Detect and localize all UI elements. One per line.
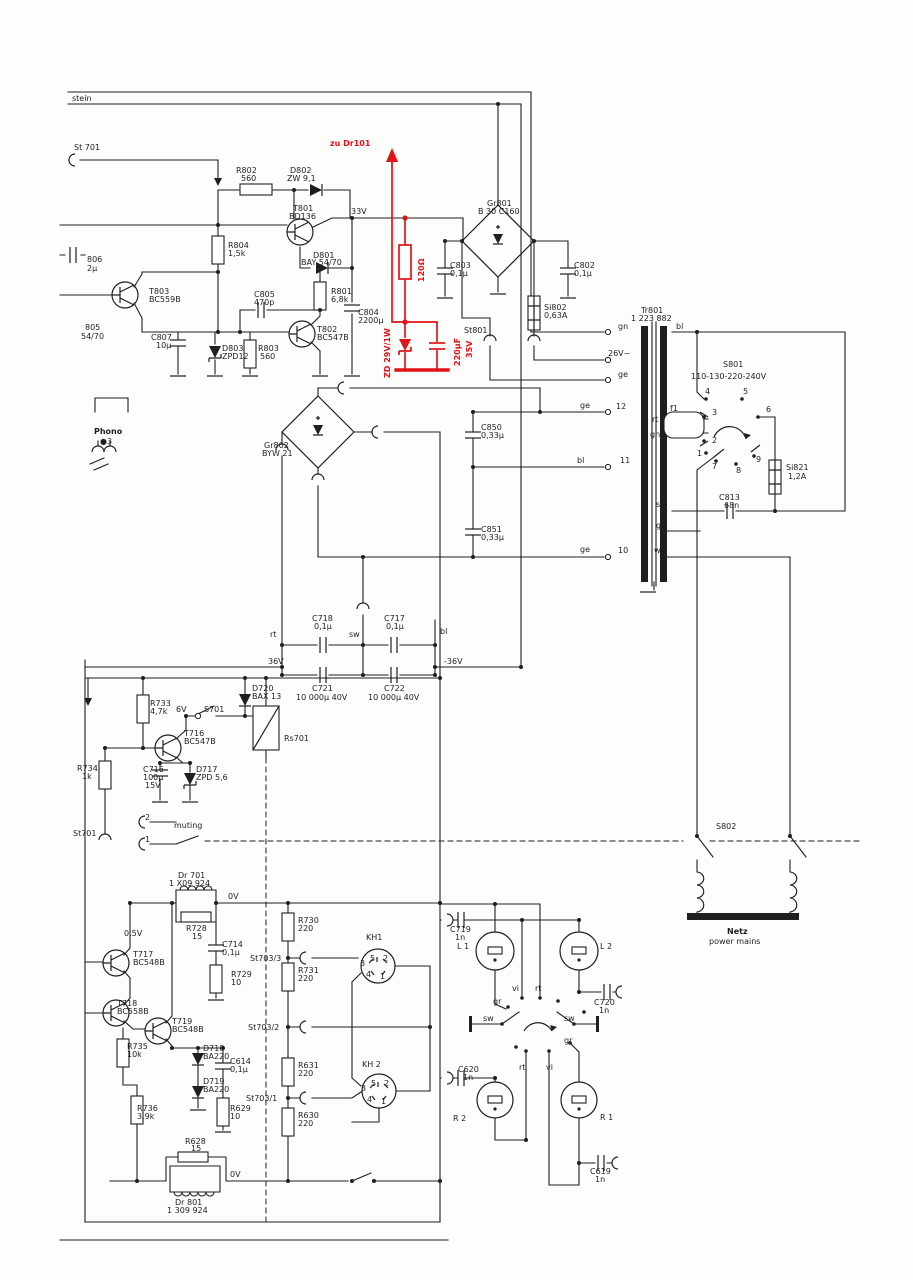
schematic-label: 0,1µ <box>222 948 240 957</box>
schematic-label: gr <box>564 1036 573 1045</box>
junction-dot <box>520 918 524 922</box>
junction-dot <box>773 509 777 513</box>
connector-arc <box>300 1092 306 1104</box>
junction-dot <box>141 676 145 680</box>
terminal-circle <box>605 554 610 559</box>
schematic-label: 0,33µ <box>481 431 504 440</box>
schematic-label: vi <box>546 1063 553 1072</box>
junction-dot <box>532 239 536 243</box>
connector-arc <box>447 1072 453 1084</box>
capacitor-C717 <box>391 637 397 653</box>
schematic-label: 2200µ <box>358 316 383 325</box>
connector-arc <box>357 603 369 609</box>
junction-dot <box>286 901 290 905</box>
schematic-label: S801 <box>723 360 743 369</box>
schematic-label: St703/2 <box>248 1023 279 1032</box>
lamp-selector-arrow <box>524 1023 552 1031</box>
schematic-label: C722 <box>384 684 405 693</box>
schematic-label: C721 <box>312 684 333 693</box>
connector-arc <box>300 952 306 964</box>
switch-contact-dot <box>556 999 560 1003</box>
schematic-label: 0,1µ <box>314 622 332 631</box>
switch-contact-dot <box>704 397 708 401</box>
schematic-label: rt <box>535 984 541 993</box>
schematic-label: 2 <box>145 813 150 822</box>
transistor-T717 <box>103 950 129 976</box>
junction-dot <box>493 1076 497 1080</box>
capacitor-C850 <box>465 432 481 438</box>
schematic-label: B 30 C160 <box>478 207 520 216</box>
resistor-R802 <box>240 184 272 195</box>
resistor-R734 <box>99 761 111 789</box>
junction-dot <box>471 465 475 469</box>
terminal-circle <box>195 713 200 718</box>
resistor-R631 <box>282 1058 294 1086</box>
schematic-label: 6,8k <box>331 295 349 304</box>
s801-selector-arrow <box>714 427 746 439</box>
schematic-label: gn <box>618 322 628 331</box>
schematic-label: 220 <box>298 924 313 933</box>
schematic-label: 4 <box>366 970 371 979</box>
schematic-label: 5 <box>371 1079 376 1088</box>
junction-dot <box>496 102 500 106</box>
fuse-Si802 <box>528 296 540 330</box>
red-junction-dot <box>402 319 407 324</box>
schematic-label: 0,63A <box>544 311 568 320</box>
diode-D802 <box>310 184 322 196</box>
schematic-label: BC548B <box>172 1025 204 1034</box>
relay-Rs701 <box>253 706 279 750</box>
schematic-label: ws <box>654 546 665 555</box>
schematic-label: 220 <box>298 1119 313 1128</box>
capacitor-C614 <box>215 1063 231 1069</box>
schematic-label: 0,5V <box>124 929 143 938</box>
schematic-label: 120Ω <box>417 258 426 282</box>
schematic-label: 0,1µ <box>450 269 468 278</box>
schematic-label: 0,1µ <box>574 269 592 278</box>
junction-dot <box>524 1138 528 1142</box>
schematic-label: 33V <box>351 207 367 216</box>
schematic-label: 0,1µ <box>230 1065 248 1074</box>
schematic-label: 10 <box>230 1112 240 1121</box>
bridge-rectifier-Gr802 <box>282 396 354 468</box>
transistor-T803 <box>112 282 138 308</box>
schematic-label: 7 <box>712 462 717 471</box>
junction-dot <box>103 746 107 750</box>
schematic-label: 4,7k <box>150 707 168 716</box>
junction-dot <box>196 1046 200 1050</box>
schematic-label: BAY 54/70 <box>301 258 342 267</box>
junction-dot <box>438 676 442 680</box>
schematic-label: 1 X09 924 <box>169 879 210 888</box>
schematic-label: 220 <box>298 974 313 983</box>
junction-dot <box>350 1179 354 1183</box>
schematic-label: Rs701 <box>284 734 309 743</box>
fuse-Si821 <box>769 460 781 494</box>
lamp-L2 <box>560 932 598 970</box>
switch-contact-dot <box>520 996 524 1000</box>
switch-contact-dot <box>547 1049 551 1053</box>
junction-dot <box>443 239 447 243</box>
junction-dot <box>538 410 542 414</box>
schematic-label: 6 <box>766 405 771 414</box>
schematic-label: ge <box>618 370 628 379</box>
schematic-label: zu Dr101 <box>330 139 371 148</box>
wire-mains <box>652 322 845 914</box>
schematic-label: 560 <box>260 352 275 361</box>
schematic-label: 4 <box>705 387 710 396</box>
switch-lever <box>751 445 760 452</box>
schematic-label: 5 <box>743 387 748 396</box>
terminal-circle <box>605 357 610 362</box>
resistor-R804 <box>212 236 224 264</box>
scanned-schematic-page: steinSt 701zu Dr101R802560D802ZW 9,1T801… <box>0 0 913 1280</box>
schematic-label: 12 <box>616 402 626 411</box>
junction-dot <box>318 308 322 312</box>
schematic-label: ZD 29V/1W <box>383 328 392 378</box>
schematic-label: 3,9k <box>137 1112 155 1121</box>
solid-bar <box>687 913 799 920</box>
schematic-label: 1 309 924 <box>167 1206 208 1215</box>
junction-dot <box>471 410 475 414</box>
resistor-R733 <box>137 695 149 723</box>
junction-dot <box>280 643 284 647</box>
junction-dot <box>433 643 437 647</box>
junction-dot <box>695 834 699 838</box>
capacitor-C851 <box>465 529 481 535</box>
schematic-label: BAX 13 <box>252 692 281 701</box>
transistor-T802 <box>289 321 315 347</box>
schematic-label: ●3 <box>100 437 112 446</box>
schematic-label: L 1 <box>457 942 469 951</box>
connector-arc <box>69 154 75 166</box>
schematic-label: 1n <box>463 1073 473 1082</box>
junction-dot <box>286 956 290 960</box>
junction-dot <box>184 714 188 718</box>
schematic-label: gr <box>493 997 502 1006</box>
junction-dot <box>243 676 247 680</box>
schematic-label: bl <box>577 456 584 465</box>
junction-dot <box>577 1161 581 1165</box>
terminal-circle <box>605 464 610 469</box>
connector-arc <box>312 474 324 480</box>
schematic-label: 220µF <box>453 338 462 366</box>
resistor-R629 <box>217 1098 229 1126</box>
junction-dot <box>438 901 442 905</box>
connector-arc <box>372 426 378 438</box>
schematic-label: L 2 <box>600 942 612 951</box>
solid-bar <box>660 326 667 582</box>
schematic-label: BC558B <box>117 1007 149 1016</box>
resistor-R729 <box>210 965 222 993</box>
schematic-label: 1,5k <box>228 249 246 258</box>
switch-contact-dot <box>582 1010 586 1014</box>
schematic-label: 1 <box>697 449 702 458</box>
junction-dot <box>577 918 581 922</box>
diode-D720 <box>239 694 251 706</box>
red-arrowhead-zu-dr101 <box>386 148 398 162</box>
junction-dot <box>135 1179 139 1183</box>
schematic-label: 0,33µ <box>481 533 504 542</box>
capacitor-mod-220uF <box>429 343 445 349</box>
schematic-label: 10 <box>231 978 241 987</box>
junction-dot <box>286 1025 290 1029</box>
resistor-R728 <box>181 912 211 922</box>
schematic-label: BC559B <box>149 295 181 304</box>
schematic-label: 1 223 882 <box>631 314 672 323</box>
schematic-label: ge <box>580 545 590 554</box>
switch-contact-dot <box>506 1005 510 1009</box>
connector-arc <box>92 446 104 452</box>
schematic-label: St701 <box>73 829 96 838</box>
schematic-label: BD136 <box>289 212 316 221</box>
schematic-label: 10 000µ 40V <box>368 693 420 702</box>
schematic-label: BA220 <box>203 1085 229 1094</box>
capacitor-C721 <box>320 667 326 683</box>
schematic-label: sw <box>564 1014 575 1023</box>
schematic-label: 10 000µ 40V <box>296 693 348 702</box>
schematic-label: power mains <box>709 937 760 946</box>
switch-contact-dot <box>756 415 760 419</box>
schematic-label: Netz <box>727 927 748 936</box>
schematic-label: 0,1µ <box>386 622 404 631</box>
s801-arrowhead <box>744 433 751 439</box>
junction-dot <box>433 673 437 677</box>
resistor-R628 <box>178 1152 208 1162</box>
junction-dot <box>433 665 437 669</box>
lamp-L1 <box>476 932 514 970</box>
schematic-label: ZPD12 <box>222 352 249 361</box>
junction-dot <box>695 330 699 334</box>
schematic-label: 3 <box>360 959 365 968</box>
transistor-T716 <box>155 735 181 761</box>
schematic-label: BYW 21 <box>262 449 293 458</box>
solid-bar <box>641 326 648 582</box>
connector-arc <box>616 986 622 998</box>
junction-dot <box>170 901 174 905</box>
connector-arc <box>612 1157 618 1169</box>
junction-dot <box>361 643 365 647</box>
schematic-label: sw <box>349 630 360 639</box>
schematic-label: ZPD 5,6 <box>196 773 228 782</box>
transistor-T801 <box>287 219 313 245</box>
schematic-label: 36V <box>268 657 284 666</box>
schematic-label: 0V <box>230 1170 241 1179</box>
junction-dot <box>188 761 192 765</box>
schematic-label: 805 <box>85 323 100 332</box>
junction-dot <box>286 1179 290 1183</box>
schematic-label: 26V~ <box>608 349 630 358</box>
switch-contact-dot <box>538 996 542 1000</box>
junction-dot <box>493 902 497 906</box>
schematic-label: 1k <box>82 772 92 781</box>
junction-dot <box>170 1046 174 1050</box>
switch-contact-dot <box>514 1045 518 1049</box>
schematic-label: S701 <box>204 705 224 714</box>
switch-contact-dot <box>500 1022 504 1026</box>
schematic-label: 15 <box>191 1144 201 1153</box>
schematic-label: 806 <box>87 255 102 264</box>
junction-dot <box>292 188 296 192</box>
switch-contact-dot <box>524 1049 528 1053</box>
dashed-mechanical-links <box>205 758 860 1222</box>
junction-dot <box>361 555 365 559</box>
transistor-T719 <box>145 1018 171 1044</box>
terminal-circle <box>605 377 610 382</box>
schematic-label: Si821 <box>786 463 809 472</box>
schematic-label: 560 <box>241 174 256 183</box>
lamp-R1 <box>561 1082 597 1118</box>
schematic-label: rt <box>519 1063 525 1072</box>
junction-dot <box>519 665 523 669</box>
schematic-canvas: steinSt 701zu Dr101R802560D802ZW 9,1T801… <box>0 0 913 1280</box>
solid-bar <box>596 1016 599 1032</box>
schematic-label: ZW 9,1 <box>287 174 316 183</box>
junction-dot <box>471 555 475 559</box>
schematic-label: 220 <box>298 1069 313 1078</box>
schematic-label: bl <box>440 627 447 636</box>
junction-dot <box>216 270 220 274</box>
junction-dot <box>350 266 354 270</box>
schematic-label: 15 <box>192 932 202 941</box>
capacitor-C722 <box>391 667 397 683</box>
schematic-label: 3 <box>361 1084 366 1093</box>
schematic-label: St703/1 <box>246 1094 277 1103</box>
schematic-label: 9 <box>756 455 761 464</box>
schematic-label: 1 <box>145 835 150 844</box>
arrowhead <box>214 178 222 186</box>
schematic-label: St801 <box>464 326 487 335</box>
schematic-label: BC547B <box>317 333 349 342</box>
schematic-label: rt <box>270 630 276 639</box>
schematic-label: muting <box>174 821 202 830</box>
junction-dot <box>372 1179 376 1183</box>
switch-contact-dot <box>704 451 708 455</box>
schematic-label: 3 <box>712 408 717 417</box>
terminal-circle <box>605 329 610 334</box>
schematic-label: 1 <box>381 1097 386 1106</box>
connector-arc <box>104 446 116 452</box>
junction-dot <box>214 901 218 905</box>
schematic-label: 15V <box>145 781 161 790</box>
junction-dot <box>788 834 792 838</box>
junction-dot <box>350 216 354 220</box>
schematic-label: 0V <box>228 892 239 901</box>
connector-arc <box>338 382 344 394</box>
capacitor-C806-stub <box>70 247 76 263</box>
terminal-circle <box>605 409 610 414</box>
schematic-label: R 2 <box>453 1114 466 1123</box>
schematic-label: 2µ <box>87 264 97 273</box>
connector-arc <box>99 834 111 840</box>
junction-dot <box>361 673 365 677</box>
resistor-R731 <box>282 963 294 991</box>
schematic-label: Phono <box>94 427 123 436</box>
schematic-label: 5 <box>370 954 375 963</box>
schematic-label: 2 <box>712 436 717 445</box>
junction-dot <box>128 901 132 905</box>
schematic-label: 4 <box>367 1095 372 1104</box>
schematic-label: 10 <box>618 546 628 555</box>
schematic-label: St 701 <box>74 143 100 152</box>
switch-contact-dot <box>740 397 744 401</box>
schematic-label: S802 <box>716 822 736 831</box>
schematic-label: 68n <box>724 501 739 510</box>
schematic-label: KH 2 <box>362 1060 381 1069</box>
junction-dot <box>286 1096 290 1100</box>
capacitor-C718 <box>320 637 326 653</box>
schematic-label: BC547B <box>184 737 216 746</box>
capacitor-C807 <box>170 340 186 346</box>
schematic-label: 10µ <box>156 341 171 350</box>
junction-dot <box>243 714 247 718</box>
schematic-label: 8 <box>736 466 741 475</box>
junction-dot <box>428 1025 432 1029</box>
schematic-label: 2 <box>383 954 388 963</box>
schematic-label: R 1 <box>600 1113 613 1122</box>
switch-lever <box>714 449 724 457</box>
schematic-label: KH1 <box>366 933 382 942</box>
schematic-label: 11 <box>620 456 630 465</box>
schematic-label: St703/3 <box>250 954 281 963</box>
schematic-label: 6V <box>176 705 187 714</box>
junction-dot <box>141 746 145 750</box>
wire-headphones <box>288 903 430 1181</box>
schematic-label: gn <box>650 430 660 439</box>
resistor-R630 <box>282 1108 294 1136</box>
schematic-label: gr <box>656 521 665 530</box>
schematic-label: -36V <box>444 657 463 666</box>
connector-box-f1 <box>664 412 704 438</box>
schematic-label: stein <box>72 94 92 103</box>
resistor-R801 <box>314 282 326 310</box>
lamp-R2 <box>477 1082 513 1118</box>
schematic-label: f1 <box>670 404 678 413</box>
junction-dot <box>280 673 284 677</box>
schematic-label: BC548B <box>133 958 165 967</box>
schematic-label: 470p <box>254 298 274 307</box>
red-junction-dot <box>402 215 407 220</box>
junction-dot <box>577 990 581 994</box>
schematic-label: rt <box>652 415 658 424</box>
schematic-label: sw <box>656 500 667 509</box>
resistor-R730 <box>282 913 294 941</box>
schematic-label: 2 <box>384 1079 389 1088</box>
resistor-mod-120ohm <box>399 245 411 279</box>
connector-arc <box>300 1021 306 1033</box>
schematic-label: 35V <box>465 340 474 358</box>
junction-dot <box>216 223 220 227</box>
schematic-label: BA220 <box>203 1052 229 1061</box>
schematic-label: vi <box>512 984 519 993</box>
schematic-label: 10k <box>127 1050 142 1059</box>
solid-bar <box>469 1016 472 1032</box>
schematic-label: 1n <box>455 933 465 942</box>
junction-dot <box>438 1179 442 1183</box>
schematic-label: 1 <box>380 972 385 981</box>
junction-dot <box>264 676 268 680</box>
schematic-label: bl <box>676 322 683 331</box>
schematic-label: 1n <box>595 1175 605 1184</box>
schematic-label: sw <box>483 1014 494 1023</box>
wire-phono <box>60 255 128 470</box>
junction-dot <box>216 330 220 334</box>
schematic-label: 1,2A <box>788 472 807 481</box>
junction-dot <box>238 330 242 334</box>
junction-dot <box>460 239 464 243</box>
schematic-label: 1n <box>599 1006 609 1015</box>
schematic-label: 110-130-220-240V <box>691 372 767 381</box>
